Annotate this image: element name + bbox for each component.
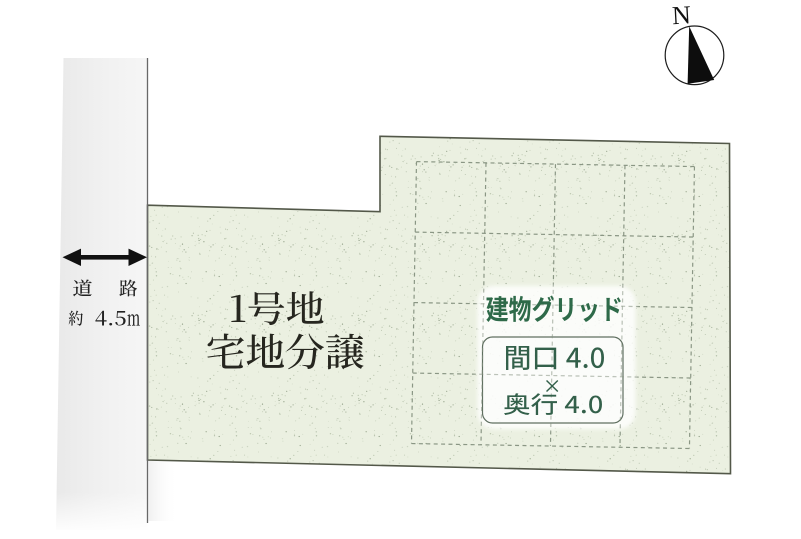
svg-text:N: N [671, 0, 691, 30]
